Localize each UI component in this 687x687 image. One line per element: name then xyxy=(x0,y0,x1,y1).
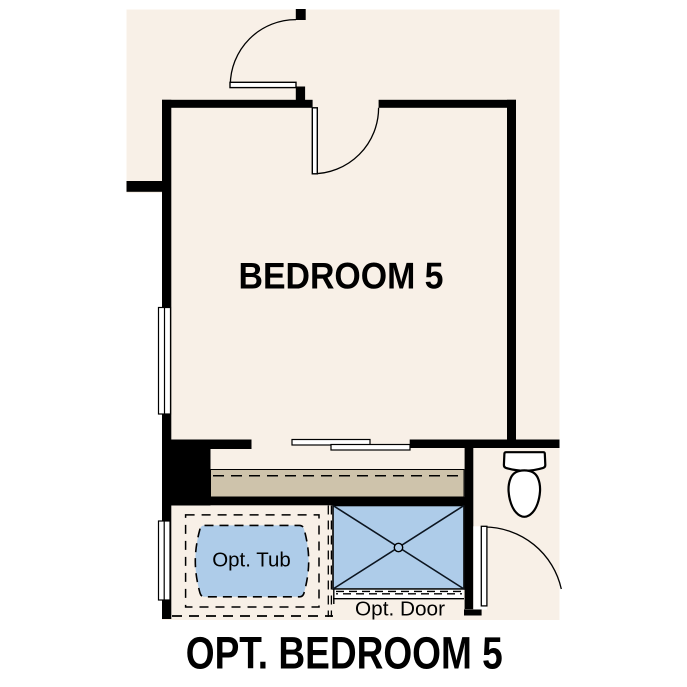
svg-text:Opt. Tub: Opt. Tub xyxy=(212,549,291,572)
svg-text:BEDROOM 5: BEDROOM 5 xyxy=(239,254,444,296)
svg-text:Opt. Door: Opt. Door xyxy=(355,598,445,621)
svg-text:OPT. BEDROOM 5: OPT. BEDROOM 5 xyxy=(186,628,503,679)
